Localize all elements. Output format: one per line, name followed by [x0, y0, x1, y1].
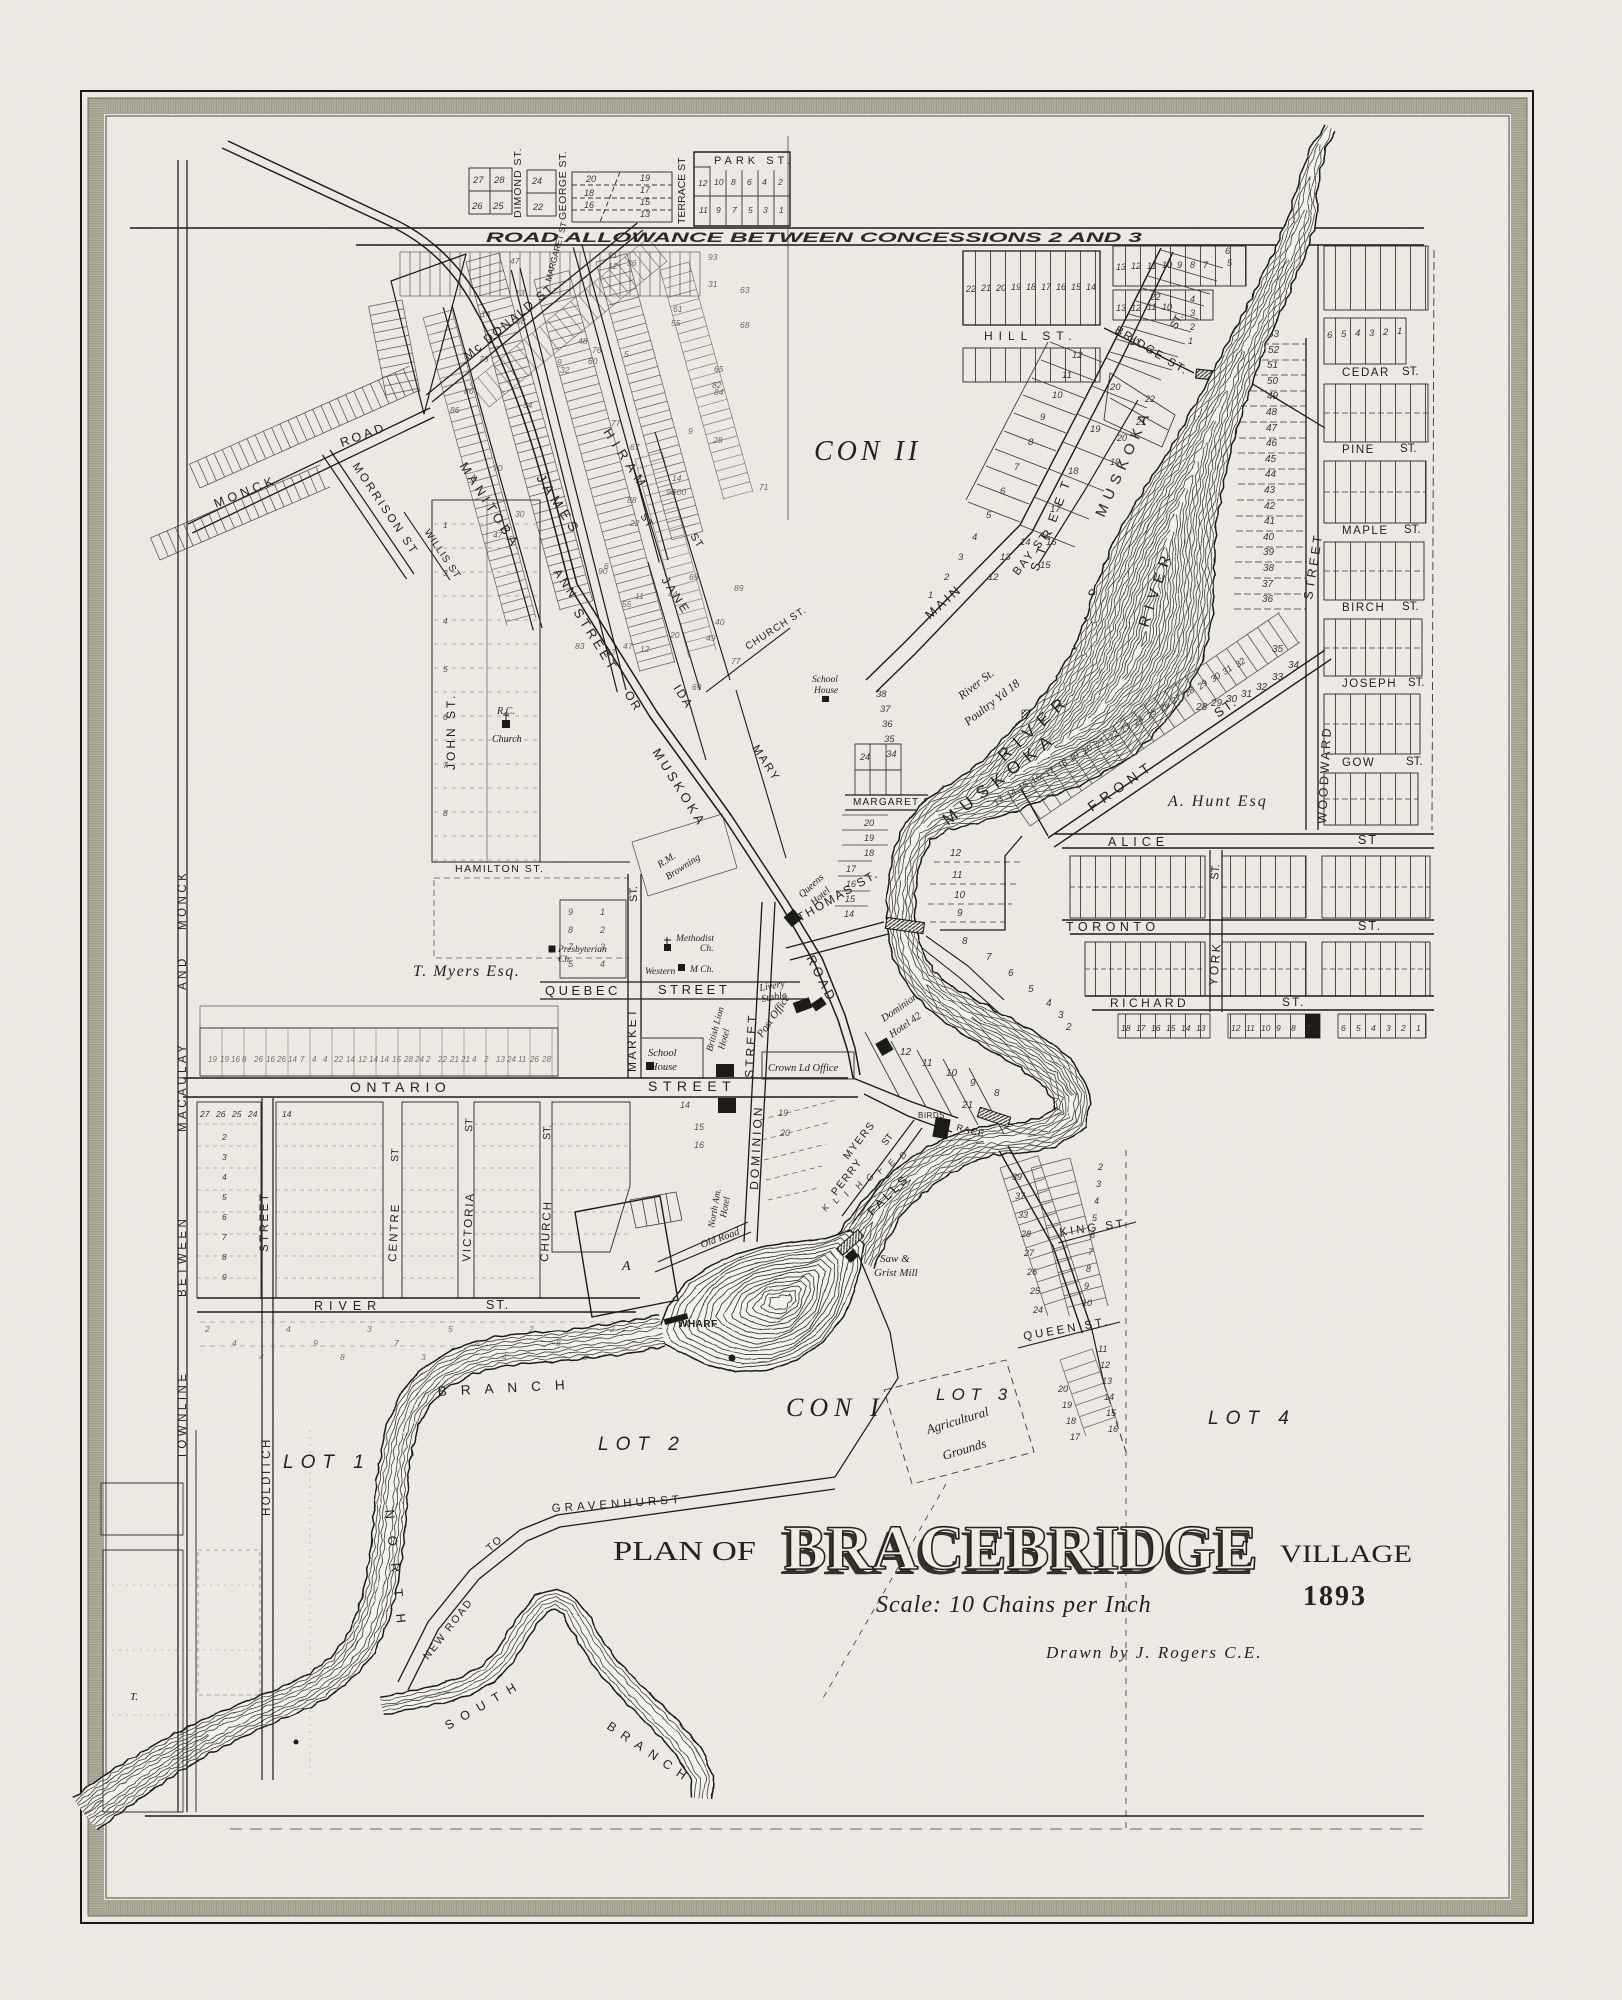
svg-text:28: 28	[712, 435, 723, 445]
svg-text:50: 50	[1267, 376, 1279, 387]
svg-text:24: 24	[859, 752, 870, 762]
svg-text:31: 31	[1241, 689, 1252, 700]
svg-text:83: 83	[575, 641, 585, 651]
svg-text:6: 6	[1327, 330, 1333, 341]
svg-text:21: 21	[1129, 337, 1141, 348]
svg-text:38: 38	[876, 689, 887, 700]
svg-text:LOT 4: LOT 4	[1208, 1408, 1296, 1429]
svg-text:A. Hunt Esq: A. Hunt Esq	[1167, 793, 1268, 810]
svg-text:HOLDITCH: HOLDITCH	[261, 1437, 273, 1516]
svg-text:47: 47	[510, 256, 520, 266]
svg-text:47: 47	[1266, 423, 1278, 434]
svg-text:15: 15	[1166, 1023, 1176, 1033]
svg-text:4: 4	[472, 1055, 477, 1064]
svg-text:21: 21	[980, 283, 991, 293]
svg-text:35: 35	[884, 734, 895, 745]
svg-text:13: 13	[515, 288, 525, 298]
svg-text:ST.: ST.	[1209, 863, 1222, 880]
svg-text:24: 24	[1032, 1305, 1043, 1315]
svg-text:22: 22	[1149, 292, 1161, 303]
svg-text:1: 1	[600, 907, 605, 917]
svg-text:26: 26	[471, 201, 483, 212]
svg-text:17: 17	[1050, 504, 1061, 515]
svg-text:68: 68	[740, 320, 750, 330]
svg-text:17: 17	[1070, 1432, 1081, 1442]
svg-text:20: 20	[779, 1128, 790, 1138]
svg-text:35: 35	[1272, 644, 1284, 655]
svg-text:8: 8	[1028, 437, 1034, 448]
svg-text:11: 11	[635, 591, 644, 601]
svg-text:9: 9	[1040, 412, 1046, 423]
svg-text:8: 8	[731, 177, 736, 187]
svg-text:3: 3	[763, 205, 768, 215]
svg-text:12: 12	[698, 178, 708, 188]
svg-text:12: 12	[900, 1047, 912, 1058]
svg-text:7: 7	[986, 952, 992, 963]
svg-text:ST.: ST.	[1402, 601, 1419, 613]
svg-text:12: 12	[1072, 350, 1083, 361]
svg-text:10: 10	[1162, 302, 1172, 312]
svg-text:16: 16	[1108, 1424, 1118, 1434]
svg-text:ST.: ST.	[1408, 677, 1425, 689]
svg-text:ST: ST	[463, 1118, 476, 1133]
svg-text:GEORGE ST.: GEORGE ST.	[557, 151, 569, 220]
svg-text:22: 22	[333, 1055, 343, 1064]
svg-text:TORONTO: TORONTO	[1066, 920, 1160, 934]
svg-text:11: 11	[518, 1055, 526, 1064]
svg-text:21: 21	[460, 1055, 470, 1064]
svg-text:28: 28	[493, 175, 505, 186]
svg-text:6: 6	[1225, 246, 1230, 256]
svg-text:8: 8	[1291, 1023, 1296, 1033]
svg-text:25: 25	[492, 201, 504, 212]
svg-text:8: 8	[962, 936, 968, 947]
svg-text:6: 6	[1341, 1023, 1346, 1033]
svg-text:8: 8	[1190, 260, 1195, 270]
svg-text:Crown Ld Office: Crown Ld Office	[768, 1063, 839, 1074]
svg-text:12: 12	[1231, 1023, 1241, 1033]
svg-text:2: 2	[609, 1324, 615, 1334]
svg-text:20: 20	[863, 818, 874, 828]
svg-text:76: 76	[592, 345, 602, 355]
svg-text:Drawn by J. Rogers C.E.: Drawn by J. Rogers C.E.	[1045, 1643, 1262, 1662]
svg-text:RICHARD: RICHARD	[1110, 996, 1189, 1010]
svg-text:2: 2	[1097, 1162, 1103, 1172]
svg-text:4: 4	[312, 1055, 317, 1064]
svg-text:4: 4	[502, 1352, 507, 1362]
svg-text:BETWEEN: BETWEEN	[177, 1216, 189, 1297]
svg-text:18: 18	[864, 848, 874, 858]
svg-text:9: 9	[222, 1272, 227, 1282]
svg-text:63: 63	[740, 285, 750, 295]
svg-text:MONCK: MONCK	[177, 870, 189, 930]
svg-text:8: 8	[475, 1338, 480, 1348]
svg-text:49: 49	[706, 633, 716, 643]
svg-text:13: 13	[1116, 303, 1126, 313]
svg-text:9: 9	[957, 908, 963, 919]
svg-text:61: 61	[673, 304, 683, 314]
svg-text:School: School	[812, 675, 838, 685]
svg-text:25: 25	[231, 1109, 242, 1119]
svg-text:37: 37	[1262, 579, 1274, 590]
svg-text:38: 38	[1263, 563, 1275, 574]
svg-text:18: 18	[584, 188, 594, 198]
svg-text:24: 24	[414, 1055, 424, 1064]
svg-text:T. Myers Esq.: T. Myers Esq.	[413, 963, 520, 980]
svg-text:1: 1	[1416, 1023, 1421, 1033]
svg-text:44: 44	[668, 589, 678, 599]
svg-text:2: 2	[528, 1324, 534, 1334]
svg-text:11: 11	[1062, 370, 1072, 381]
svg-text:60: 60	[588, 356, 598, 366]
svg-text:86: 86	[450, 405, 460, 415]
svg-text:LOT 3: LOT 3	[936, 1385, 1013, 1404]
svg-text:4: 4	[1046, 998, 1052, 1009]
svg-text:14: 14	[672, 473, 682, 483]
svg-text:4: 4	[259, 1352, 264, 1362]
svg-text:MARKET: MARKET	[625, 1007, 639, 1072]
svg-text:43: 43	[1264, 485, 1276, 496]
svg-text:GOW: GOW	[1342, 757, 1375, 769]
svg-text:13: 13	[496, 1055, 505, 1064]
svg-text:34: 34	[1288, 660, 1300, 671]
svg-text:15: 15	[694, 1122, 705, 1132]
svg-text:100: 100	[672, 487, 686, 497]
svg-text:BIRCH: BIRCH	[1342, 602, 1385, 614]
svg-text:6: 6	[222, 1212, 227, 1222]
svg-text:11: 11	[952, 870, 962, 881]
svg-text:20: 20	[995, 283, 1006, 293]
svg-text:STREET: STREET	[648, 1078, 736, 1094]
svg-text:HILL ST.: HILL ST.	[984, 329, 1078, 343]
svg-text:21: 21	[961, 1100, 973, 1111]
svg-text:5: 5	[1356, 1023, 1361, 1033]
svg-text:51: 51	[1267, 360, 1278, 371]
svg-text:28: 28	[403, 1055, 413, 1064]
svg-text:16: 16	[231, 1055, 240, 1064]
svg-text:STREET: STREET	[658, 982, 730, 997]
svg-text:24: 24	[531, 176, 542, 186]
svg-text:9: 9	[716, 205, 721, 215]
svg-text:15: 15	[1106, 1408, 1117, 1418]
svg-text:37: 37	[1015, 1191, 1026, 1201]
svg-text:7: 7	[1014, 462, 1020, 473]
svg-text:14: 14	[844, 909, 854, 919]
svg-text:36: 36	[1262, 594, 1274, 605]
svg-text:BRACEBRIDGE: BRACEBRIDGE	[784, 1512, 1258, 1583]
svg-text:69: 69	[689, 572, 699, 582]
svg-text:AND: AND	[177, 955, 189, 990]
svg-text:QUEBEC: QUEBEC	[545, 983, 621, 998]
svg-text:M Ch.: M Ch.	[689, 965, 714, 975]
svg-text:1893: 1893	[1303, 1581, 1367, 1612]
svg-text:4: 4	[1371, 1023, 1376, 1033]
svg-text:52: 52	[1268, 345, 1280, 356]
svg-text:77: 77	[731, 656, 741, 666]
svg-text:18: 18	[1066, 1416, 1076, 1426]
svg-text:16: 16	[584, 200, 594, 210]
svg-text:4: 4	[232, 1338, 237, 1348]
svg-text:71: 71	[759, 482, 769, 492]
svg-text:MAPLE: MAPLE	[1342, 525, 1389, 537]
svg-text:20: 20	[585, 174, 596, 184]
svg-text:2: 2	[221, 1132, 227, 1142]
svg-text:13: 13	[1102, 1376, 1112, 1386]
svg-text:12: 12	[950, 848, 962, 859]
svg-text:26: 26	[1026, 1267, 1037, 1277]
svg-text:17: 17	[1041, 282, 1052, 292]
svg-text:9: 9	[1177, 260, 1182, 270]
svg-text:37: 37	[880, 704, 891, 715]
svg-text:40: 40	[1263, 532, 1275, 543]
svg-text:Scale: 10 Chains per Inch: Scale: 10 Chains per Inch	[876, 1592, 1152, 1618]
svg-text:70: 70	[493, 463, 503, 473]
svg-text:4: 4	[972, 532, 977, 543]
svg-text:5: 5	[1341, 329, 1347, 340]
svg-text:16: 16	[1056, 282, 1066, 292]
svg-text:10: 10	[954, 890, 966, 901]
svg-text:9: 9	[1084, 1281, 1089, 1291]
svg-text:11: 11	[1246, 1023, 1255, 1033]
svg-text:ST.: ST.	[1406, 756, 1423, 768]
svg-text:3: 3	[443, 568, 448, 578]
svg-text:19: 19	[864, 833, 874, 843]
svg-text:45: 45	[1265, 454, 1277, 465]
svg-text:88: 88	[627, 495, 637, 505]
svg-text:2: 2	[943, 572, 950, 583]
svg-text:26: 26	[529, 1055, 539, 1064]
svg-text:Western: Western	[645, 967, 676, 977]
svg-text:LOT 2: LOT 2	[598, 1434, 686, 1455]
svg-text:ST.: ST.	[628, 886, 640, 902]
svg-text:10: 10	[946, 1068, 958, 1079]
svg-text:39: 39	[1263, 547, 1275, 558]
svg-text:12: 12	[358, 1055, 367, 1064]
svg-text:3: 3	[222, 1152, 227, 1162]
svg-text:14: 14	[1181, 1023, 1191, 1033]
svg-text:3: 3	[367, 1324, 372, 1334]
svg-text:36: 36	[627, 258, 637, 268]
svg-text:16: 16	[1046, 537, 1057, 548]
svg-text:9: 9	[313, 1338, 318, 1348]
svg-text:93: 93	[708, 252, 718, 262]
svg-text:14: 14	[1020, 537, 1031, 548]
svg-text:VILLAGE: VILLAGE	[1280, 1541, 1412, 1568]
svg-text:27: 27	[1023, 1248, 1035, 1258]
svg-text:RIVER: RIVER	[314, 1299, 382, 1313]
svg-text:16: 16	[266, 1055, 275, 1064]
svg-text:8: 8	[994, 1088, 1000, 1099]
svg-text:3: 3	[421, 1352, 426, 1362]
svg-text:19: 19	[220, 1055, 229, 1064]
svg-text:36: 36	[882, 719, 893, 730]
svg-text:9: 9	[1276, 1023, 1281, 1033]
svg-text:ALICE: ALICE	[1108, 835, 1169, 849]
svg-text:8: 8	[1086, 1264, 1091, 1274]
svg-text:CON I: CON I	[786, 1393, 885, 1422]
svg-text:ST.: ST.	[1282, 995, 1305, 1009]
svg-text:28: 28	[1020, 1229, 1031, 1239]
svg-text:8: 8	[556, 1338, 561, 1348]
svg-text:26: 26	[276, 1055, 286, 1064]
svg-text:28: 28	[541, 1055, 551, 1064]
svg-text:14: 14	[288, 1055, 297, 1064]
svg-text:14: 14	[1086, 282, 1096, 292]
svg-text:CON II: CON II	[814, 436, 921, 467]
svg-text:9: 9	[568, 907, 573, 917]
svg-text:26: 26	[253, 1055, 263, 1064]
svg-text:91: 91	[608, 250, 618, 260]
svg-text:30: 30	[515, 509, 525, 519]
svg-text:5: 5	[748, 205, 753, 215]
svg-text:8: 8	[242, 1055, 247, 1064]
svg-text:77: 77	[611, 418, 621, 428]
svg-text:22: 22	[965, 284, 976, 294]
svg-text:14: 14	[680, 1100, 690, 1110]
svg-text:2: 2	[1400, 1023, 1406, 1033]
svg-text:Saw &: Saw &	[880, 1253, 910, 1265]
svg-text:10: 10	[1082, 1298, 1092, 1308]
svg-text:Grist Mill: Grist Mill	[874, 1267, 918, 1279]
svg-text:JOSEPH: JOSEPH	[1342, 678, 1397, 690]
svg-text:3: 3	[958, 552, 964, 563]
svg-text:3: 3	[1386, 1023, 1391, 1033]
svg-text:26: 26	[215, 1109, 226, 1119]
svg-text:20: 20	[1109, 382, 1121, 393]
svg-text:4: 4	[222, 1172, 227, 1182]
svg-text:2: 2	[425, 1055, 431, 1064]
svg-text:22: 22	[629, 518, 640, 528]
svg-text:21: 21	[449, 1055, 459, 1064]
svg-text:3: 3	[1369, 328, 1375, 339]
svg-text:T.: T.	[130, 1691, 138, 1703]
svg-text:14: 14	[1104, 1392, 1114, 1402]
svg-text:6: 6	[443, 712, 448, 722]
svg-text:18: 18	[1121, 1023, 1131, 1033]
svg-text:PARK ST.: PARK ST.	[714, 155, 794, 167]
svg-text:48: 48	[578, 336, 588, 346]
svg-text:5: 5	[986, 510, 992, 521]
svg-text:25: 25	[1029, 1286, 1041, 1296]
svg-text:12: 12	[988, 572, 999, 583]
svg-text:19: 19	[1062, 1400, 1072, 1410]
svg-text:20: 20	[1057, 1384, 1068, 1394]
svg-text:69: 69	[692, 682, 702, 692]
svg-text:ST.: ST.	[486, 1298, 510, 1312]
svg-text:11: 11	[699, 205, 708, 215]
svg-text:4: 4	[286, 1324, 291, 1334]
svg-text:15: 15	[1071, 282, 1082, 292]
svg-text:2: 2	[599, 925, 605, 935]
svg-text:18: 18	[1026, 282, 1036, 292]
svg-text:4: 4	[1355, 328, 1360, 339]
svg-text:5: 5	[1028, 984, 1034, 995]
svg-text:ST.: ST.	[1402, 366, 1419, 378]
svg-text:13: 13	[640, 209, 650, 219]
svg-text:19: 19	[1011, 282, 1021, 292]
svg-text:73: 73	[479, 354, 489, 364]
svg-text:HAMILTON ST.: HAMILTON ST.	[455, 863, 544, 875]
svg-text:17: 17	[846, 864, 857, 874]
svg-text:ST.: ST.	[1400, 443, 1417, 455]
svg-text:13: 13	[1116, 262, 1126, 272]
svg-text:16: 16	[694, 1140, 704, 1150]
svg-text:1: 1	[1188, 336, 1193, 346]
svg-text:8: 8	[568, 925, 573, 935]
svg-text:4: 4	[471, 472, 476, 482]
svg-text:7: 7	[732, 205, 737, 215]
svg-text:14: 14	[369, 1055, 378, 1064]
svg-text:40: 40	[715, 617, 725, 627]
svg-text:47: 47	[623, 641, 633, 651]
svg-text:9: 9	[970, 1078, 976, 1089]
svg-text:15: 15	[640, 197, 651, 207]
svg-text:42: 42	[1264, 501, 1276, 512]
svg-text:19: 19	[778, 1108, 788, 1118]
svg-text:19: 19	[208, 1055, 217, 1064]
svg-text:4: 4	[443, 616, 448, 626]
svg-text:2: 2	[1382, 327, 1389, 338]
svg-text:3: 3	[600, 942, 605, 952]
svg-text:15: 15	[1040, 560, 1051, 571]
svg-text:ST.: ST.	[1404, 524, 1421, 536]
svg-text:16: 16	[1151, 1023, 1161, 1033]
svg-text:86: 86	[464, 386, 474, 396]
svg-text:ST: ST	[389, 1148, 402, 1163]
svg-text:6: 6	[747, 177, 752, 187]
svg-text:33: 33	[1018, 1210, 1028, 1220]
svg-text:20: 20	[669, 630, 680, 640]
svg-text:19: 19	[1090, 424, 1101, 435]
svg-text:JOHN ST.: JOHN ST.	[444, 693, 458, 770]
svg-text:31: 31	[708, 279, 718, 289]
svg-text:Ch.: Ch.	[700, 944, 713, 954]
svg-text:2: 2	[1065, 1022, 1072, 1033]
svg-text:7: 7	[394, 1338, 399, 1348]
svg-text:6: 6	[1008, 968, 1014, 979]
svg-text:1: 1	[779, 205, 784, 215]
svg-text:55: 55	[671, 318, 681, 328]
svg-text:ST.: ST.	[1358, 919, 1382, 933]
svg-text:8: 8	[443, 808, 448, 818]
svg-text:24: 24	[247, 1109, 258, 1119]
svg-text:12: 12	[608, 261, 618, 271]
svg-text:Church: Church	[492, 734, 522, 745]
svg-text:DIMOND ST.: DIMOND ST.	[512, 147, 524, 218]
svg-text:9: 9	[583, 1352, 588, 1362]
svg-text:A: A	[621, 1259, 631, 1274]
svg-text:3: 3	[1096, 1179, 1101, 1189]
svg-text:7: 7	[300, 1055, 305, 1064]
svg-text:ONTARIO: ONTARIO	[350, 1079, 451, 1095]
svg-text:4: 4	[323, 1055, 328, 1064]
svg-text:44: 44	[1265, 469, 1277, 480]
svg-text:65: 65	[714, 364, 724, 374]
svg-text:CEDAR: CEDAR	[1342, 367, 1390, 379]
svg-text:55: 55	[622, 599, 632, 609]
svg-text:TERRACE ST: TERRACE ST	[676, 157, 688, 224]
svg-text:PLAN OF: PLAN OF	[613, 1536, 756, 1566]
svg-text:PINE: PINE	[1342, 444, 1375, 456]
svg-text:14: 14	[380, 1055, 389, 1064]
svg-text:TOWNLINE: TOWNLINE	[177, 1371, 189, 1460]
svg-text:9: 9	[557, 357, 562, 367]
svg-text:12: 12	[1131, 261, 1141, 271]
svg-text:8: 8	[340, 1352, 345, 1362]
svg-text:4: 4	[762, 177, 767, 187]
svg-text:39: 39	[1012, 1172, 1022, 1182]
svg-text:2: 2	[204, 1324, 210, 1334]
